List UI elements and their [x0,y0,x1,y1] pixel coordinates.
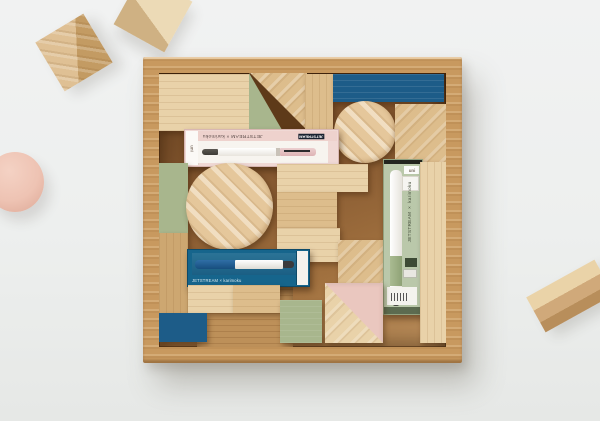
uni-brand-box: uni [404,166,419,174]
package-window [198,141,328,163]
package-title: JETSTREAM × karimoku [203,133,263,139]
block-square-wood-mid [338,240,385,284]
blocks-tray: uni JETSTREAM × karimoku JETSTREAM [143,57,462,363]
tray-interior: uni JETSTREAM × karimoku JETSTREAM [159,73,446,347]
pen-package-blue: JETSTREAM × karimoku [187,249,310,287]
package-title: JETSTREAM × karimoku [192,278,241,283]
package-end-label [296,251,308,285]
loose-wood-block-bottom-right [526,260,600,333]
jetstream-logo: JETSTREAM [298,133,324,139]
block-rectangle-wood-vertical [305,74,333,137]
pen-green [390,170,402,300]
loose-pink-cylinder [0,152,44,212]
package-title: JETSTREAM × karimoku [407,208,412,243]
pen-clip [284,150,310,152]
pen-grip [390,256,402,286]
block-bar-wood-1 [277,164,368,192]
block-triangle-pair [249,73,307,135]
package-edge-bottom [384,307,422,314]
pen-pink [202,148,322,156]
block-rectangle-wood-left [159,233,188,313]
block-rectangle-green-left [159,163,188,233]
block-bar-wood-2 [277,192,337,228]
block-small-wood-2 [233,285,280,313]
block-rectangle-wood-large [159,74,249,131]
pen-barrel [218,148,276,156]
block-rectangle-wood-tall-right [420,162,446,343]
block-rectangle-blue [333,74,444,102]
block-square-with-pink-triangle [325,283,383,343]
block-circle-large [186,163,273,250]
block-square-wood-right [395,104,446,162]
package-title-strip: JETSTREAM × karimoku [192,276,296,284]
package-badge-2 [403,269,417,278]
pen-package-green: uni JETSTREAM × karimoku [383,159,423,315]
scene: uni JETSTREAM × karimoku JETSTREAM [0,0,600,421]
package-badge [405,258,417,267]
package-title-strip: JETSTREAM × karimoku JETSTREAM [198,131,337,141]
block-triangle-pink [325,283,383,343]
loose-wood-cube-top-left [35,14,112,92]
package-edge-top [384,160,422,164]
barcode-label [387,287,417,305]
uni-brand-text: uni [190,145,195,152]
pen-cap-blue [195,260,235,269]
block-square-blue [159,313,207,342]
pen-tip [202,149,218,155]
loose-wood-block-top [114,0,193,52]
block-circle-small [334,101,396,163]
pen-package-pink: uni JETSTREAM × karimoku JETSTREAM [184,129,339,167]
block-small-wood-1 [188,285,233,313]
block-rectangle-green-bottom [280,300,322,343]
pen-barrel [235,260,283,269]
package-window [192,253,296,275]
uni-brand-text: uni [408,168,415,173]
pen-tip [283,261,294,268]
